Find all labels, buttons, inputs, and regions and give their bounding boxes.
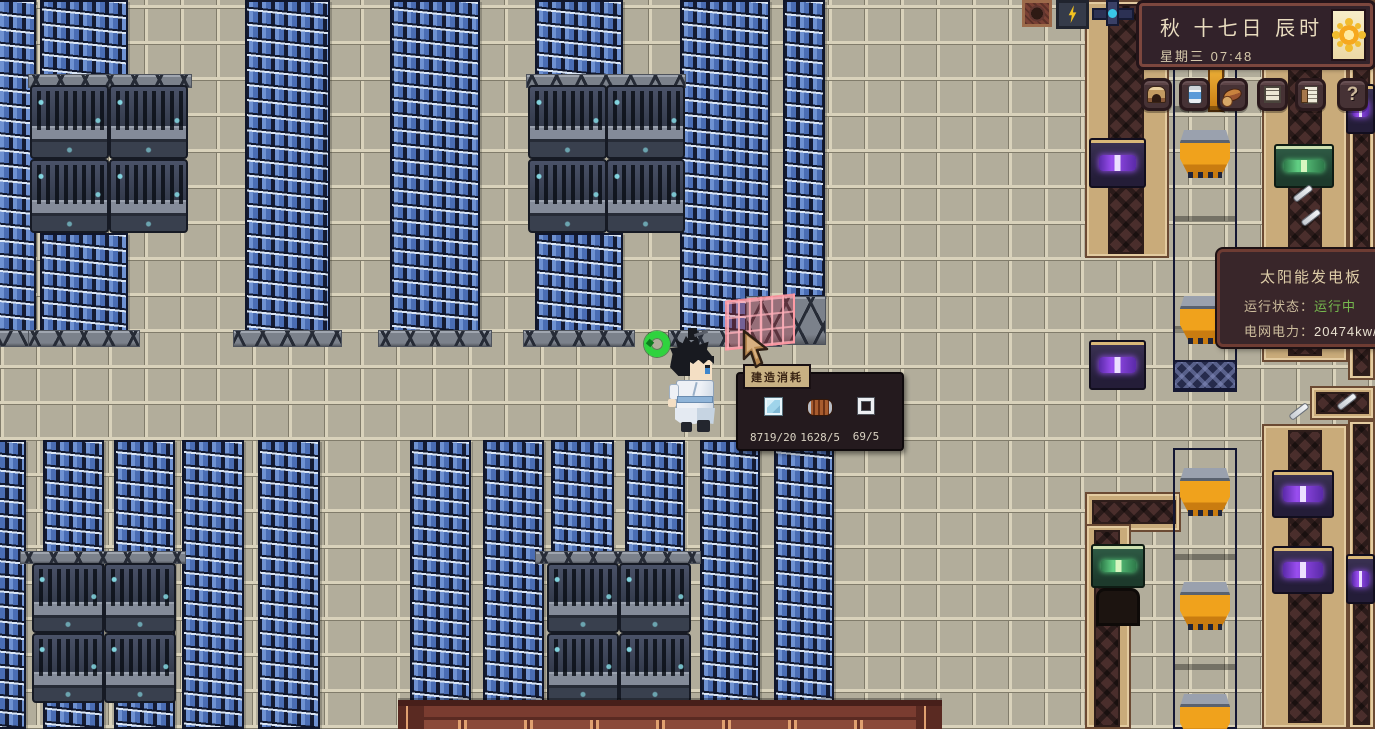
player-character[interactable] (664, 332, 726, 432)
tooltip-title: 太阳能发电板 (1244, 266, 1375, 287)
pipe-cross-junction[interactable] (1092, 0, 1134, 26)
sun-icon (1339, 25, 1359, 45)
battery-machine[interactable] (30, 159, 109, 233)
hopper-teeth (1188, 510, 1222, 516)
solar-panel-column[interactable] (680, 0, 770, 332)
hopper-teeth (1188, 624, 1222, 630)
character-sash (677, 396, 713, 403)
battery-machine[interactable] (619, 563, 691, 633)
splitter-machine[interactable] (1089, 340, 1146, 390)
question-mark-icon: ? (1347, 85, 1359, 104)
pipe-hopper-machine[interactable] (1180, 694, 1230, 729)
pipe-hopper-machine[interactable] (1180, 130, 1230, 178)
panel-mount-base (233, 330, 342, 347)
build-cost-item: 8719/20 (750, 398, 796, 444)
copper-coil-icon (808, 400, 832, 415)
battery-machine[interactable] (104, 633, 176, 703)
power-label: 电网电力： (1244, 324, 1314, 339)
canned-food-icon (1188, 85, 1202, 104)
status-label: 运行状态： (1244, 299, 1314, 314)
battery-machine[interactable] (528, 159, 607, 233)
help-button[interactable]: ? (1337, 78, 1368, 111)
battery-machine[interactable] (547, 633, 619, 703)
glass-panel-count: 8719/20 (750, 431, 796, 444)
splitter-machine[interactable] (1272, 470, 1334, 518)
date-time-panel: 秋 十七日 辰时 星期三 07:48 (1139, 3, 1373, 67)
build-cost-item: 1628/5 (798, 398, 842, 444)
solar-panel-column[interactable] (783, 0, 825, 297)
power-value: 20474kw/s (1314, 324, 1375, 339)
storage-button[interactable] (1179, 78, 1210, 111)
mouse-cursor (741, 330, 771, 370)
power-pipe-cap (1173, 360, 1237, 390)
building-roof (398, 700, 942, 729)
solar-panel-column[interactable] (774, 440, 834, 729)
tooltip-power-row: 电网电力：20474kw/s (1244, 321, 1375, 340)
furnace-icon (1147, 86, 1166, 103)
battery-machine[interactable] (32, 633, 104, 703)
hopper-teeth (1188, 172, 1222, 178)
conveyor-tunnel-opening (1096, 588, 1140, 626)
weekday-text: 星期三 (1160, 49, 1205, 64)
pipe-hopper-machine[interactable] (1180, 582, 1230, 630)
pipe-cross-part (1108, 9, 1117, 18)
home-button[interactable] (1141, 78, 1172, 111)
battery-machine[interactable] (109, 159, 188, 233)
solar-panel-column[interactable] (40, 233, 128, 332)
copper-coil-count: 1628/5 (798, 431, 842, 444)
battery-machine[interactable] (30, 85, 109, 159)
battery-machine[interactable] (606, 85, 685, 159)
splitter-machine[interactable] (1089, 138, 1146, 188)
character-hand (668, 399, 676, 407)
power-indicator-tile[interactable] (1056, 0, 1089, 29)
frame-icon (858, 398, 874, 414)
solar-panel-column[interactable] (410, 440, 471, 729)
battery-machine[interactable] (32, 563, 104, 633)
tasks-button[interactable] (1257, 78, 1288, 111)
food-icon (1222, 86, 1244, 103)
solar-panel-tooltip: 太阳能发电板 运行状态：运行中 电网电力：20474kw/s (1217, 249, 1375, 347)
panel-mount-base (28, 330, 140, 347)
solar-panel-column[interactable] (700, 440, 760, 729)
game-viewport: 秋 十七日 辰时 星期三 07:48 ? 太阳能发电板 运行状态：运行中 (0, 0, 1375, 729)
food-button[interactable] (1217, 78, 1248, 111)
weather-icon-box (1331, 9, 1366, 61)
splitter-machine[interactable] (1346, 554, 1375, 604)
battery-machine[interactable] (109, 85, 188, 159)
solar-panel-column[interactable] (535, 233, 623, 332)
list-icon (1264, 86, 1281, 103)
battery-machine[interactable] (606, 159, 685, 233)
manhole-tile[interactable] (1022, 0, 1052, 27)
battery-machine[interactable] (619, 633, 691, 703)
character-front-leg (697, 420, 710, 432)
time-text: 07:48 (1211, 49, 1254, 64)
ledger-button[interactable] (1295, 78, 1326, 111)
roof-tile-band (398, 717, 942, 729)
roof-corner (916, 706, 942, 729)
glass-panel-icon (765, 398, 782, 415)
battery-machine[interactable] (528, 85, 607, 159)
character-eye (705, 365, 710, 374)
solar-panel-column[interactable] (245, 0, 330, 332)
processor-machine[interactable] (1274, 144, 1334, 188)
solar-panel-column[interactable] (182, 440, 244, 729)
panel-mount-base (523, 330, 635, 347)
build-cost-item: 69/5 (844, 398, 888, 444)
solar-panel-column[interactable] (258, 440, 320, 729)
solar-panel-column[interactable] (483, 440, 544, 729)
conveyor-belt[interactable] (1092, 500, 1176, 524)
solar-panel-column[interactable] (0, 440, 26, 729)
splitter-machine[interactable] (1272, 546, 1334, 594)
pipe-hopper-machine[interactable] (1180, 468, 1230, 516)
lightning-icon (1067, 5, 1079, 23)
build-cost-panel: 建造消耗 8719/20 1628/5 69/5 (736, 372, 904, 451)
character-back-leg (681, 422, 692, 432)
solar-panel-column[interactable] (390, 0, 480, 332)
roof-corner (398, 706, 424, 729)
date-text: 秋 十七日 辰时 (1160, 12, 1323, 41)
frame-count: 69/5 (844, 430, 888, 443)
processor-machine[interactable] (1091, 544, 1145, 588)
battery-machine[interactable] (547, 563, 619, 633)
tooltip-status-row: 运行状态：运行中 (1244, 296, 1375, 315)
status-value: 运行中 (1314, 299, 1356, 314)
battery-machine[interactable] (104, 563, 176, 633)
ledger-icon (1304, 86, 1318, 104)
panel-mount-base (378, 330, 492, 347)
